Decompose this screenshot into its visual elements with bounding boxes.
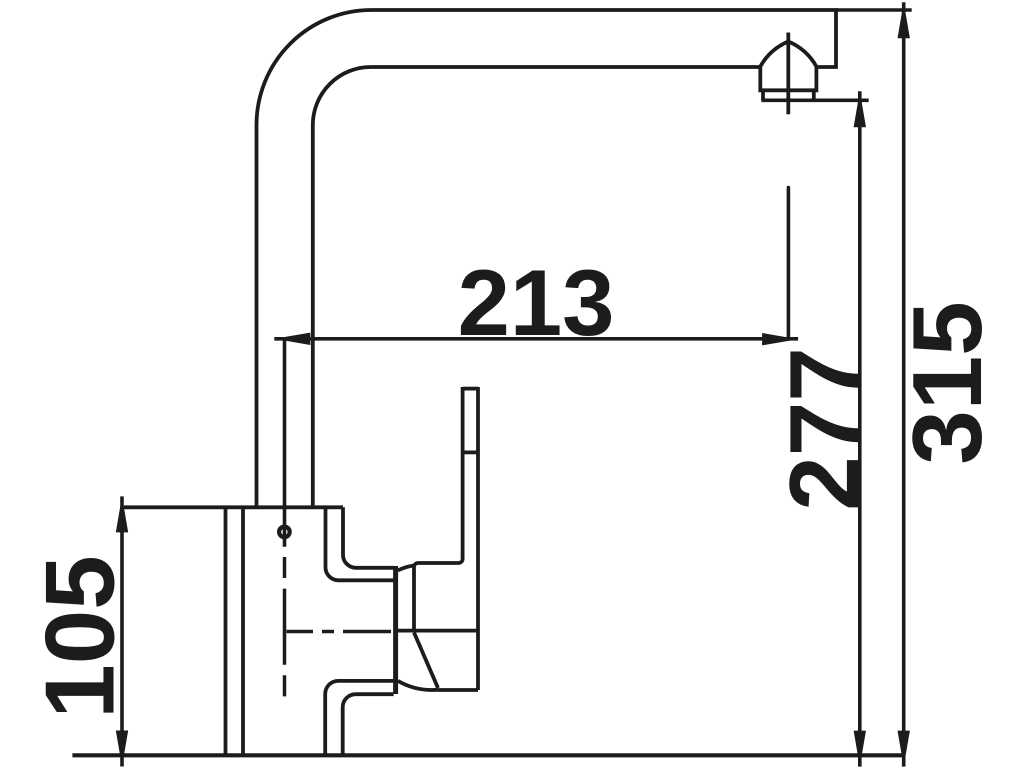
svg-text:105: 105 <box>25 555 135 719</box>
svg-text:315: 315 <box>892 301 1002 465</box>
svg-text:213: 213 <box>458 250 615 355</box>
svg-text:277: 277 <box>769 347 879 511</box>
